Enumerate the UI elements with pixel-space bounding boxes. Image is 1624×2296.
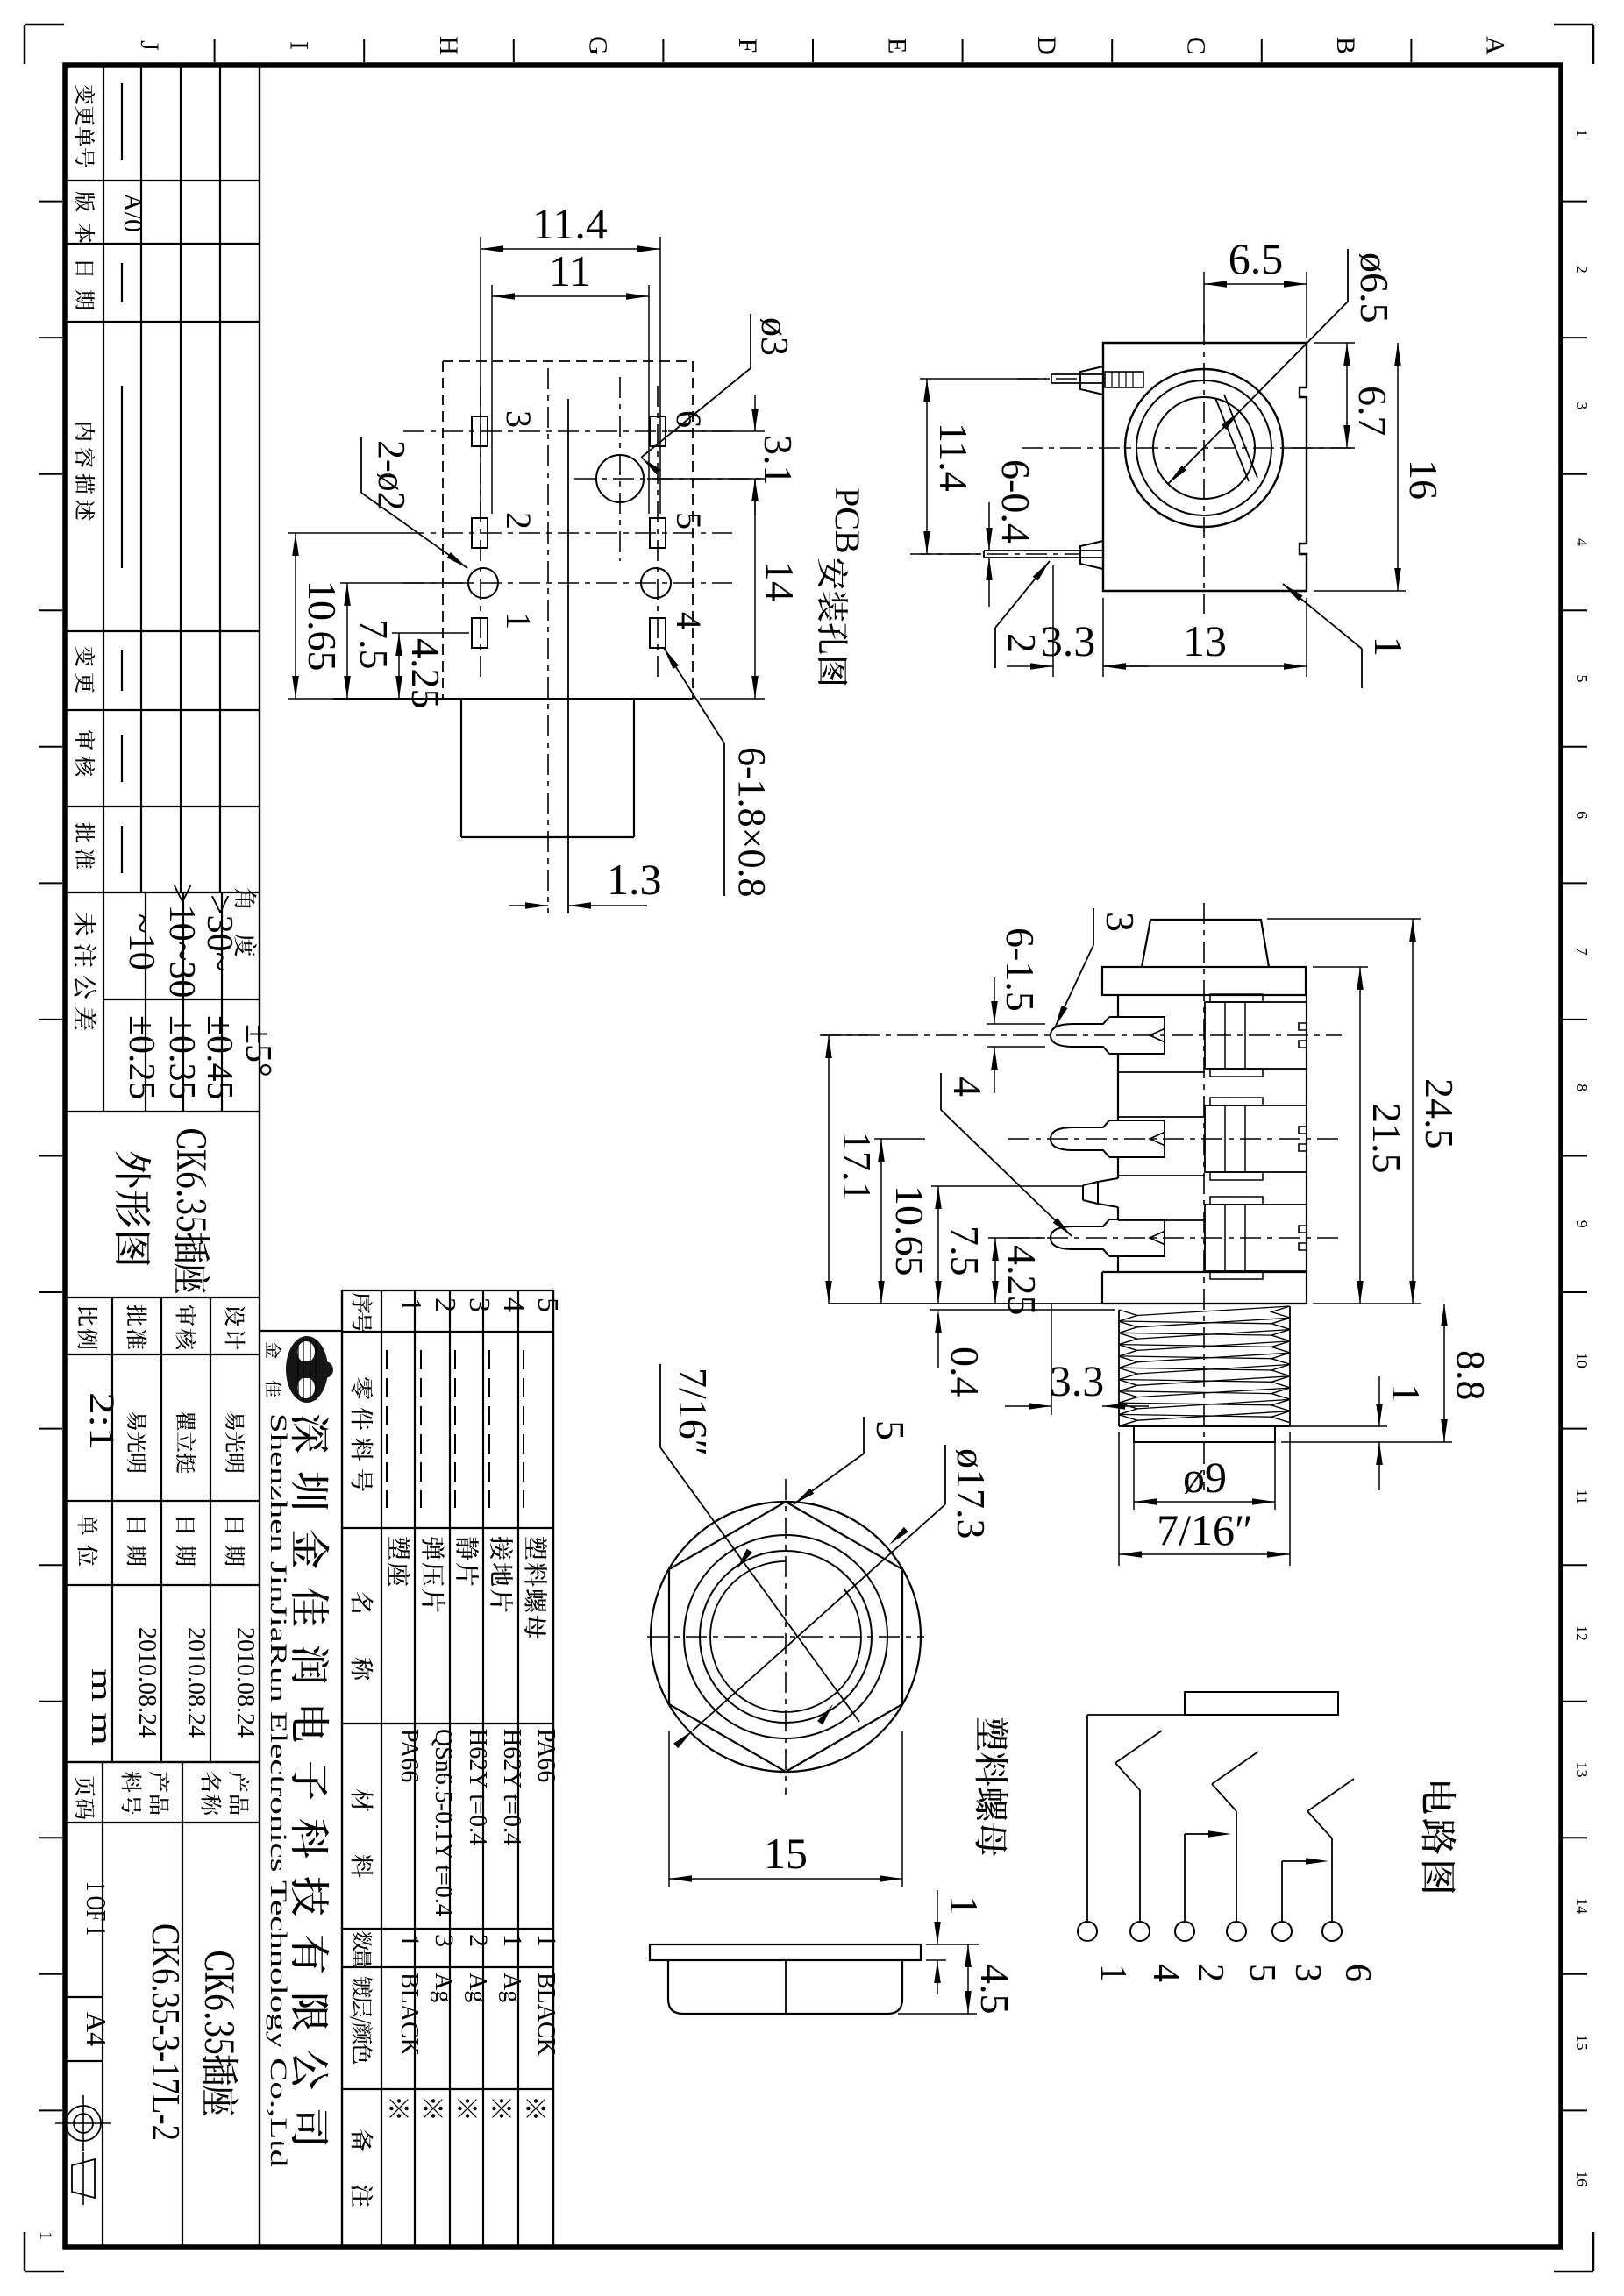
svg-text:QSn6.5-0.1Y t=0.4: QSn6.5-0.1Y t=0.4 bbox=[430, 1729, 457, 1916]
svg-text:F: F bbox=[733, 39, 762, 53]
svg-text:BLACK: BLACK bbox=[532, 1973, 559, 2056]
svg-text:5: 5 bbox=[1242, 1964, 1282, 1982]
svg-text:4: 4 bbox=[945, 1077, 990, 1097]
svg-text:2: 2 bbox=[1573, 266, 1591, 274]
svg-text:CK6.35-3-17L-2: CK6.35-3-17L-2 bbox=[144, 1923, 189, 2141]
svg-text:±5°: ±5° bbox=[238, 1024, 278, 1077]
svg-text:H62Y t=0.4: H62Y t=0.4 bbox=[464, 1729, 491, 1845]
svg-text:8: 8 bbox=[1573, 1084, 1591, 1091]
svg-text:I: I bbox=[285, 41, 314, 50]
svg-text:D: D bbox=[1032, 36, 1061, 55]
svg-text:17.1: 17.1 bbox=[835, 1131, 880, 1202]
svg-text:1: 1 bbox=[1384, 1383, 1428, 1404]
svg-text:16: 16 bbox=[1573, 2171, 1591, 2186]
svg-text:6: 6 bbox=[1337, 1964, 1378, 1982]
svg-text:3.3: 3.3 bbox=[1050, 1356, 1105, 1405]
svg-text:6-1.8×0.8: 6-1.8×0.8 bbox=[730, 747, 773, 897]
svg-text:21.5: 21.5 bbox=[1364, 1103, 1409, 1174]
svg-text:7.5: 7.5 bbox=[352, 619, 396, 670]
svg-text:3: 3 bbox=[1287, 1964, 1328, 1982]
svg-text:7/16″: 7/16″ bbox=[1157, 1505, 1253, 1554]
svg-text:11: 11 bbox=[549, 246, 591, 295]
svg-text:5: 5 bbox=[1573, 675, 1591, 683]
svg-text:4.25: 4.25 bbox=[1000, 1245, 1044, 1316]
svg-text:6-1.5: 6-1.5 bbox=[998, 928, 1043, 1012]
svg-text:3: 3 bbox=[430, 1934, 459, 1947]
svg-text:2: 2 bbox=[499, 512, 538, 530]
svg-text:Ag: Ag bbox=[430, 1973, 457, 2002]
svg-text:10.65: 10.65 bbox=[300, 580, 345, 672]
svg-text:H62Y t=0.4: H62Y t=0.4 bbox=[498, 1729, 525, 1845]
svg-text:4: 4 bbox=[1573, 538, 1591, 546]
svg-text:±0.35: ±0.35 bbox=[161, 1015, 202, 1100]
svg-text:>10~30: >10~30 bbox=[161, 884, 202, 998]
svg-text:ø17.3: ø17.3 bbox=[949, 1448, 994, 1539]
svg-text:11.4: 11.4 bbox=[931, 423, 976, 492]
svg-text:PCB: PCB bbox=[828, 487, 867, 554]
svg-text:2:1: 2:1 bbox=[82, 1392, 122, 1450]
svg-text:6.5: 6.5 bbox=[1229, 234, 1284, 283]
svg-text:0.4: 0.4 bbox=[943, 1347, 987, 1397]
svg-text:5: 5 bbox=[531, 1297, 564, 1312]
svg-text:15: 15 bbox=[764, 1829, 808, 1878]
svg-text:13: 13 bbox=[1573, 1762, 1591, 1778]
svg-text:±0.45: ±0.45 bbox=[199, 1015, 239, 1100]
svg-text:A/0: A/0 bbox=[118, 193, 147, 232]
svg-text:10: 10 bbox=[1573, 1353, 1591, 1368]
svg-text:11: 11 bbox=[1573, 1489, 1591, 1504]
svg-text:1: 1 bbox=[1366, 636, 1411, 657]
svg-text:m m: m m bbox=[85, 1668, 118, 1745]
svg-text:3.1: 3.1 bbox=[756, 435, 801, 486]
svg-text:1: 1 bbox=[1093, 1964, 1133, 1982]
svg-text:3: 3 bbox=[1573, 402, 1591, 409]
svg-text:4.5: 4.5 bbox=[972, 1964, 1017, 2015]
svg-text:Ag: Ag bbox=[464, 1973, 491, 2002]
svg-text:G: G bbox=[584, 36, 613, 55]
svg-text:2010.08.24: 2010.08.24 bbox=[133, 1627, 160, 1738]
svg-text:1: 1 bbox=[395, 1934, 424, 1947]
svg-text:BLACK: BLACK bbox=[395, 1973, 423, 2056]
svg-text:5: 5 bbox=[868, 1420, 913, 1440]
svg-text:ø3: ø3 bbox=[753, 317, 796, 356]
svg-text:8.8: 8.8 bbox=[1449, 1350, 1493, 1401]
svg-text:3: 3 bbox=[463, 1297, 495, 1312]
svg-text:4: 4 bbox=[1145, 1964, 1186, 1982]
svg-text:7: 7 bbox=[1573, 948, 1591, 956]
svg-text:7/16″: 7/16″ bbox=[671, 1368, 716, 1456]
svg-text:J: J bbox=[135, 40, 164, 51]
svg-text:2: 2 bbox=[1000, 633, 1044, 653]
svg-text:16: 16 bbox=[1401, 459, 1446, 500]
svg-text:>30~: >30~ bbox=[199, 894, 239, 971]
svg-text:Shenzhen JinJiaRun Electronics: Shenzhen JinJiaRun Electronics Technolog… bbox=[266, 1413, 291, 2167]
svg-text:4: 4 bbox=[497, 1297, 530, 1312]
svg-text:4: 4 bbox=[669, 612, 709, 629]
svg-text:B: B bbox=[1331, 37, 1360, 54]
svg-text:2-ø2: 2-ø2 bbox=[370, 440, 413, 511]
svg-text:Ag: Ag bbox=[498, 1973, 525, 2002]
svg-text:5: 5 bbox=[669, 512, 709, 530]
svg-text:1 OF 1: 1 OF 1 bbox=[81, 1881, 112, 1936]
svg-text:1: 1 bbox=[532, 1934, 561, 1947]
svg-text:1.3: 1.3 bbox=[607, 855, 662, 904]
svg-text:1: 1 bbox=[395, 1297, 427, 1312]
svg-text:24.5: 24.5 bbox=[1417, 1078, 1462, 1149]
svg-text:C: C bbox=[1182, 37, 1211, 54]
svg-text:PA66: PA66 bbox=[395, 1729, 423, 1782]
svg-text:A4: A4 bbox=[81, 2012, 112, 2046]
svg-text:E: E bbox=[883, 38, 912, 53]
svg-text:3: 3 bbox=[499, 410, 538, 428]
svg-text:1: 1 bbox=[498, 1934, 527, 1947]
svg-text:3.3: 3.3 bbox=[1041, 616, 1096, 665]
svg-text:2010.08.24: 2010.08.24 bbox=[182, 1627, 210, 1738]
svg-text:2010.08.24: 2010.08.24 bbox=[231, 1627, 259, 1738]
svg-text:9: 9 bbox=[1573, 1220, 1591, 1228]
svg-text:1: 1 bbox=[942, 1895, 987, 1916]
svg-text:14: 14 bbox=[758, 561, 802, 601]
svg-text:3: 3 bbox=[1098, 912, 1143, 932]
svg-text:1: 1 bbox=[499, 612, 538, 629]
svg-text:ø9: ø9 bbox=[1183, 1453, 1227, 1502]
svg-text:15: 15 bbox=[1573, 2035, 1591, 2051]
svg-text:12: 12 bbox=[1573, 1625, 1591, 1641]
svg-text:4.25: 4.25 bbox=[403, 638, 448, 709]
svg-text:2: 2 bbox=[464, 1934, 493, 1947]
svg-text:±0.25: ±0.25 bbox=[121, 1015, 161, 1100]
svg-text:14: 14 bbox=[1573, 1898, 1591, 1914]
svg-text:13: 13 bbox=[1183, 616, 1227, 665]
svg-text:PA66: PA66 bbox=[532, 1729, 559, 1782]
svg-text:ø6.5: ø6.5 bbox=[1352, 252, 1397, 323]
svg-text:6: 6 bbox=[1573, 811, 1591, 819]
svg-text:H: H bbox=[434, 36, 463, 55]
svg-text:2: 2 bbox=[429, 1297, 461, 1312]
svg-text:6.7: 6.7 bbox=[1350, 386, 1395, 437]
svg-text:A: A bbox=[1481, 36, 1510, 55]
svg-text:2: 2 bbox=[1190, 1964, 1230, 1982]
svg-text:11.4: 11.4 bbox=[532, 199, 608, 248]
svg-text:7.5: 7.5 bbox=[943, 1226, 987, 1276]
svg-text:1: 1 bbox=[1573, 129, 1591, 137]
svg-text:~10: ~10 bbox=[121, 913, 161, 970]
svg-text:1: 1 bbox=[36, 2231, 55, 2240]
svg-text:6-0.4: 6-0.4 bbox=[994, 459, 1038, 544]
svg-text:10.65: 10.65 bbox=[887, 1185, 932, 1276]
